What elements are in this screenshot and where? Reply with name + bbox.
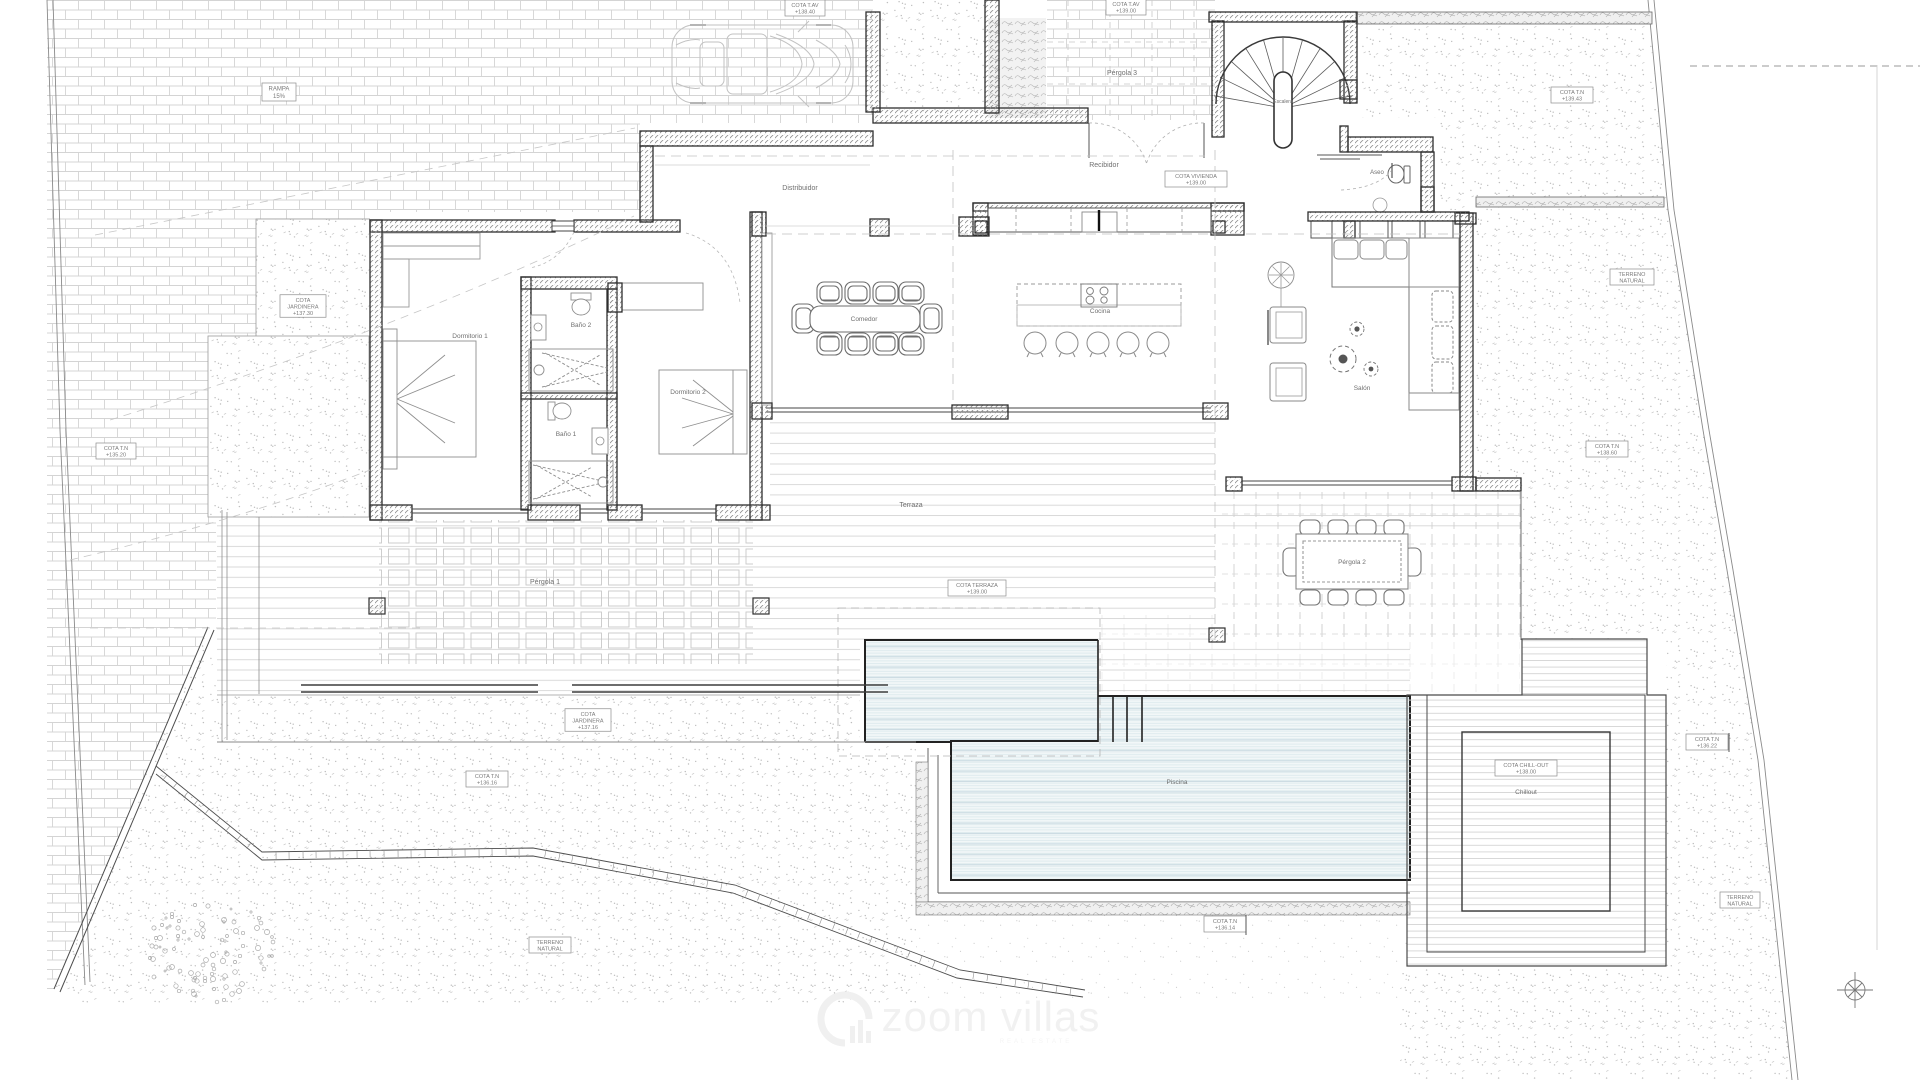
svg-text:RAMPA: RAMPA — [269, 87, 290, 93]
svg-text:COTA CHILL-OUT: COTA CHILL-OUT — [1503, 763, 1549, 769]
svg-text:JARDINERA: JARDINERA — [572, 718, 604, 724]
svg-text:TERRENO: TERRENO — [537, 940, 565, 946]
svg-text:NATURAL: NATURAL — [537, 947, 562, 953]
svg-text:Cocina: Cocina — [1090, 308, 1111, 315]
svg-text:Aseo: Aseo — [1370, 170, 1384, 176]
svg-text:+138.00: +138.00 — [1516, 770, 1536, 776]
svg-text:Chillout: Chillout — [1515, 789, 1537, 796]
svg-text:COTA: COTA — [581, 712, 596, 718]
svg-text:+138.40: +138.40 — [795, 10, 815, 16]
svg-text:Pérgola 3: Pérgola 3 — [1107, 70, 1137, 77]
svg-text:+139.00: +139.00 — [967, 590, 987, 596]
svg-text:COTA T.N: COTA T.N — [1695, 737, 1719, 743]
svg-text:Dormitorio 2: Dormitorio 2 — [670, 389, 706, 396]
svg-text:Salón: Salón — [1354, 385, 1371, 392]
svg-text:+139.00: +139.00 — [1116, 9, 1136, 15]
svg-text:REAL ESTATE: REAL ESTATE — [1000, 1039, 1073, 1045]
svg-text:Escalera: Escalera — [1273, 99, 1293, 105]
svg-text:COTA T.N: COTA T.N — [475, 774, 499, 780]
svg-text:COTA T.N: COTA T.N — [1560, 90, 1584, 96]
svg-text:TERRENO: TERRENO — [1727, 895, 1755, 901]
svg-text:15%: 15% — [273, 94, 286, 100]
svg-text:COTA: COTA — [296, 298, 311, 304]
svg-text:Piscina: Piscina — [1167, 779, 1188, 786]
svg-text:NATURAL: NATURAL — [1619, 279, 1644, 285]
svg-text:Distribuidor: Distribuidor — [782, 185, 818, 192]
svg-text:COTA T.AV: COTA T.AV — [791, 3, 819, 9]
svg-text:+137.30: +137.30 — [293, 311, 313, 317]
svg-text:+136.22: +136.22 — [1697, 744, 1717, 750]
svg-text:Terraza: Terraza — [899, 502, 922, 509]
svg-text:Baño 2: Baño 2 — [571, 322, 592, 329]
svg-text:+136.14: +136.14 — [1215, 926, 1235, 932]
svg-text:+136.16: +136.16 — [477, 781, 497, 787]
svg-text:Pérgola 1: Pérgola 1 — [530, 579, 560, 586]
svg-text:+138.60: +138.60 — [1597, 451, 1617, 457]
svg-text:Dormitorio 1: Dormitorio 1 — [452, 333, 488, 340]
svg-text:NATURAL: NATURAL — [1727, 902, 1752, 908]
svg-text:COTA T.N: COTA T.N — [1595, 444, 1619, 450]
svg-text:Recibidor: Recibidor — [1089, 162, 1119, 169]
svg-text:Comedor: Comedor — [851, 316, 879, 323]
svg-text:+137.16: +137.16 — [578, 725, 598, 731]
svg-text:+139.43: +139.43 — [1562, 97, 1582, 103]
svg-text:JARDINERA: JARDINERA — [287, 304, 319, 310]
svg-text:COTA TERRAZA: COTA TERRAZA — [956, 583, 998, 589]
svg-text:Baño 1: Baño 1 — [556, 431, 577, 438]
svg-text:zoom villas: zoom villas — [882, 993, 1101, 1040]
svg-text:+135.20: +135.20 — [106, 453, 126, 459]
svg-text:COTA T.N: COTA T.N — [104, 446, 128, 452]
svg-text:COTA VIVIENDA: COTA VIVIENDA — [1175, 174, 1217, 180]
svg-text:COTA T.AV: COTA T.AV — [1112, 2, 1140, 8]
svg-text:Pérgola 2: Pérgola 2 — [1338, 559, 1366, 566]
svg-text:TERRENO: TERRENO — [1619, 272, 1647, 278]
svg-text:COTA T.N: COTA T.N — [1213, 919, 1237, 925]
svg-text:+139.00: +139.00 — [1186, 181, 1206, 187]
